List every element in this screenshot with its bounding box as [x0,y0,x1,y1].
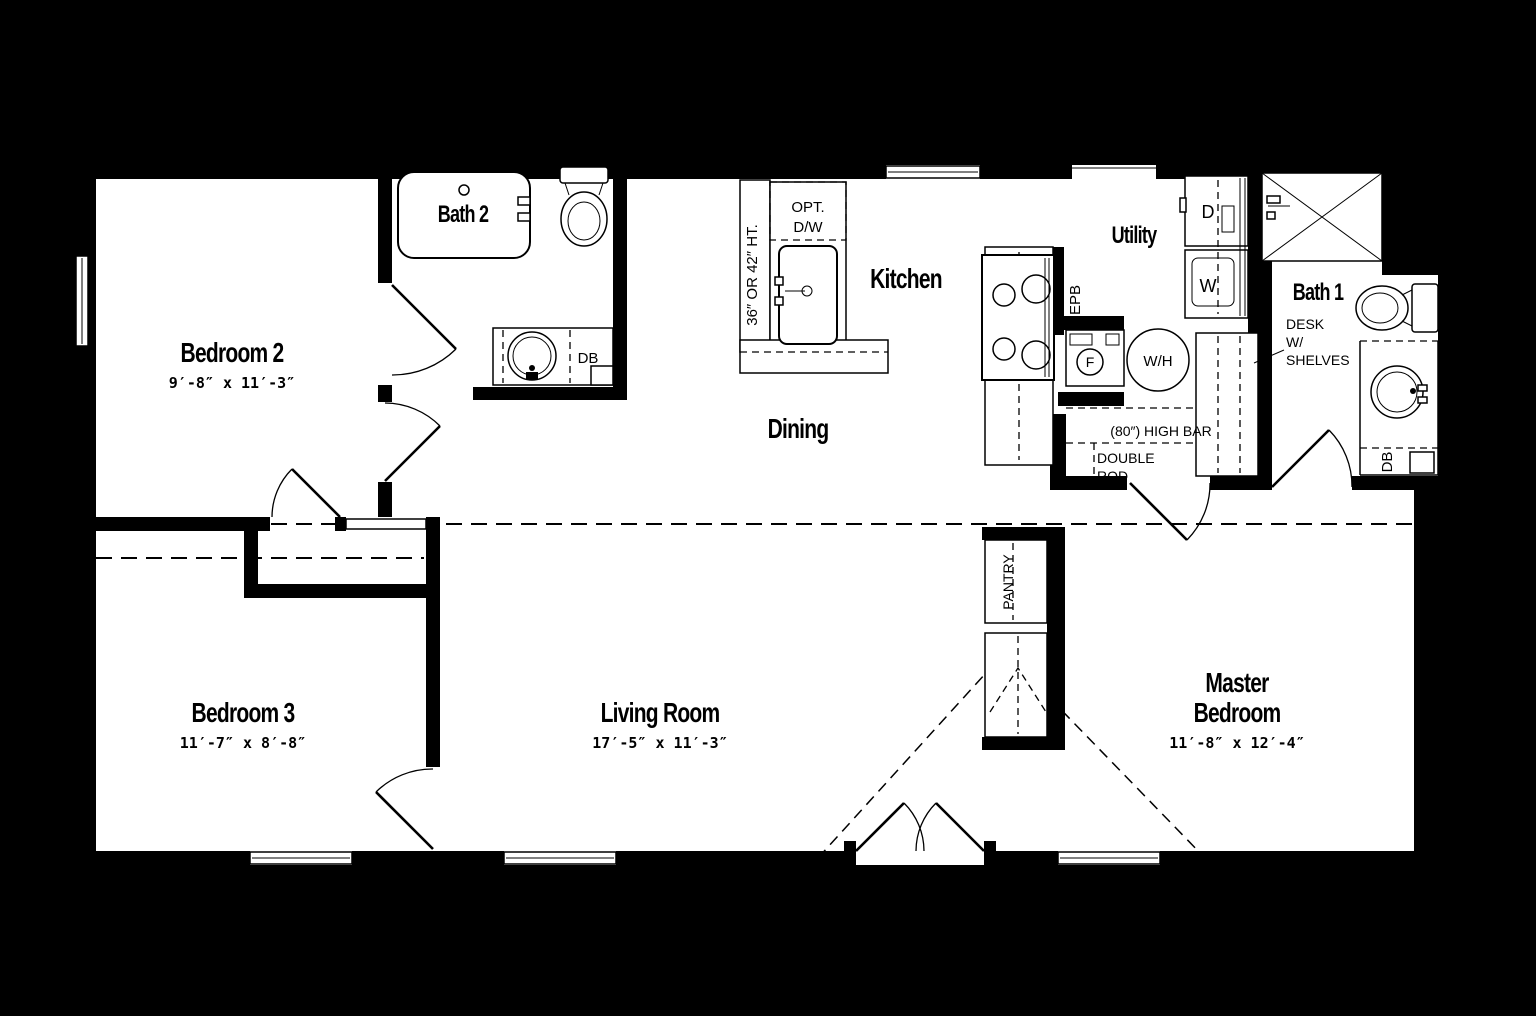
svg-text:Utility: Utility [1112,223,1158,249]
svg-text:Bath 1: Bath 1 [1293,280,1344,306]
svg-text:Bath 2: Bath 2 [438,202,489,228]
window-left [76,256,88,346]
dims-master: 11′-8″ x 12′-4″ [1169,734,1304,752]
counter-height-note: 36″ OR 42″ HT. [744,224,761,326]
epb-label: EPB [1067,285,1084,315]
svg-text:Kitchen: Kitchen [870,264,942,295]
label-bedroom2: Bedroom 2 [181,338,284,369]
label-kitchen: Kitchen [870,264,942,295]
svg-text:Bedroom 3: Bedroom 3 [192,698,295,729]
svg-text:Living Room: Living Room [601,698,720,729]
double-rod-line1: DOUBLE [1097,450,1155,466]
window-bottom-2 [504,852,616,864]
dryer-label: D [1202,202,1215,222]
floor-plan-drawing: Bedroom 2 9′-8″ x 11′-3″ Bedroom 3 11′-7… [0,0,1536,1016]
desk-line1: DESK [1286,316,1325,332]
label-utility: Utility [1112,223,1158,249]
label-bath2: Bath 2 [438,202,489,228]
window-top [886,166,980,178]
furnace-label: F [1086,354,1095,370]
dims-bedroom2: 9′-8″ x 11′-3″ [169,374,295,392]
double-rod-line2: ROD [1097,468,1128,484]
desk-line2: W/ [1286,334,1303,350]
svg-text:Bedroom 2: Bedroom 2 [181,338,284,369]
db-label-bath2: DB [578,350,599,367]
high-bar-label: (80″) HIGH BAR [1110,423,1211,439]
svg-text:Bedroom: Bedroom [1194,698,1281,729]
opt-dw-line2: D/W [793,219,823,236]
shower-icon [1262,173,1382,261]
window-bottom-1 [250,852,352,864]
dims-living-room: 17′-5″ x 11′-3″ [592,734,727,752]
label-master-line2: Bedroom [1194,698,1281,729]
pantry-label: PANTRY [1000,554,1016,610]
window-bottom-3 [1058,852,1160,864]
label-master-line1: Master [1205,668,1269,699]
svg-text:Dining: Dining [768,414,829,445]
washer-icon [1185,250,1248,318]
washer-label: W [1200,276,1217,296]
desk-shelves-unit [1196,333,1258,476]
dims-bedroom3: 11′-7″ x 8′-8″ [180,734,306,752]
floor-plan-page: Bedroom 2 9′-8″ x 11′-3″ Bedroom 3 11′-7… [0,0,1536,1016]
label-living-room: Living Room [601,698,720,729]
water-heater-label: W/H [1143,353,1172,370]
kitchen-sink-icon [775,246,837,344]
range-icon [982,255,1054,380]
entry-closet [985,633,1047,737]
pantry-unit [985,540,1047,623]
furnace-icon [1066,330,1124,386]
db-label-bath1: DB [1379,452,1396,473]
label-bedroom3: Bedroom 3 [192,698,295,729]
label-bath1: Bath 1 [1293,280,1344,306]
desk-line3: SHELVES [1286,352,1350,368]
svg-text:Master: Master [1205,668,1269,699]
opt-dw-line1: OPT. [791,199,824,216]
label-dining: Dining [768,414,829,445]
